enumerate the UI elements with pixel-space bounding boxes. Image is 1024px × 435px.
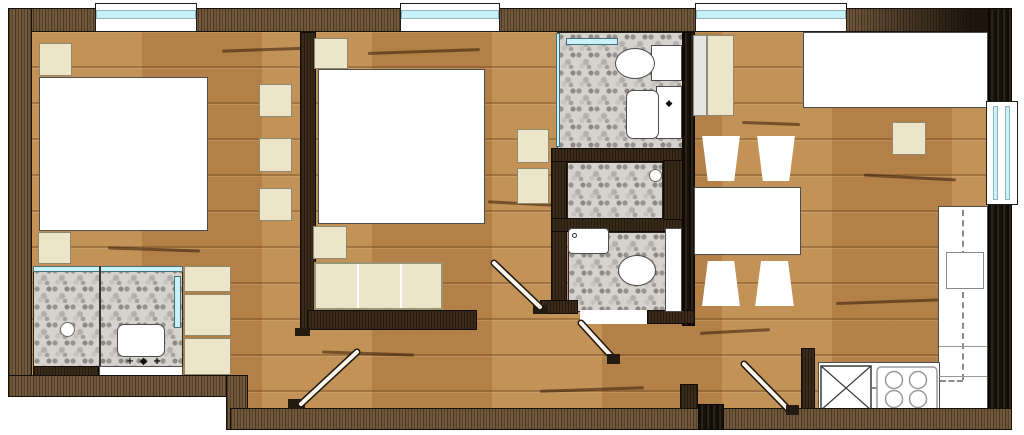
door-overlay: [0, 0, 1024, 435]
kitchen-door: [744, 364, 799, 415]
entry-door: [288, 328, 357, 409]
floor-plan-canvas: + ◆ + + ◆ +: [0, 0, 1024, 435]
bathroom-bottom-door: [581, 323, 620, 364]
bedroom2-door: [494, 263, 547, 314]
